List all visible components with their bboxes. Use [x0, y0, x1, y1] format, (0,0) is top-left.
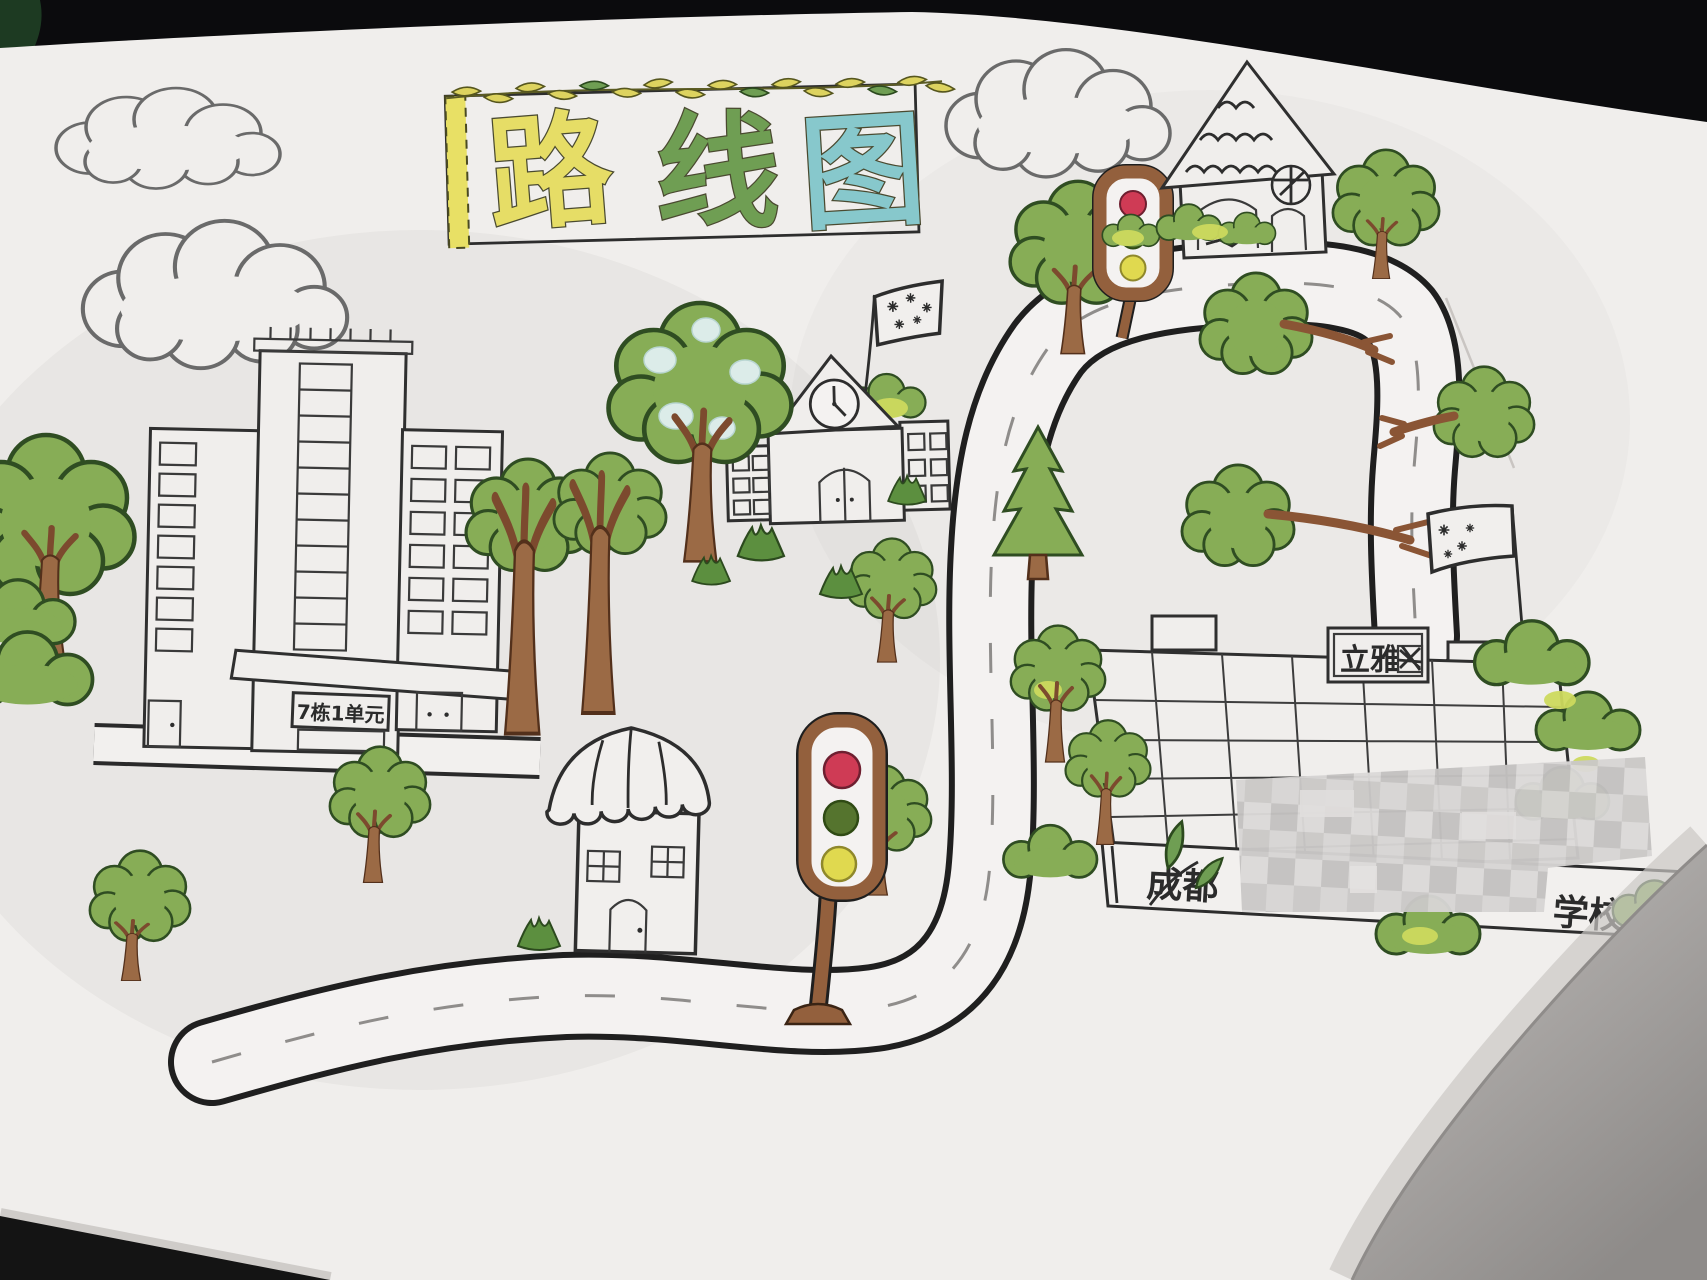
yellow-light: [1121, 256, 1146, 281]
rooftop-structure: [1152, 616, 1216, 650]
rooftop-sign: 立雅: [1328, 628, 1428, 682]
title-char-tu: 图: [797, 98, 930, 249]
green-light: [824, 801, 858, 835]
cottage-window-round: [1272, 166, 1310, 204]
red-light: [824, 752, 860, 788]
rooftop-sign-label: 立雅: [1340, 643, 1400, 678]
yellow-light: [822, 847, 856, 881]
title-char-xian: 线: [655, 101, 780, 246]
drawing-canvas: 路 线 图 7栋1单元: [0, 0, 1707, 1280]
title-char-lu: 路: [483, 97, 619, 250]
school-clock: [810, 379, 859, 428]
photo-of-hand-drawn-route-map: 路 线 图 7栋1单元: [0, 0, 1707, 1280]
red-light: [1120, 191, 1146, 217]
title-banner: 路 线 图: [445, 67, 959, 259]
shop-body: [575, 811, 699, 954]
title-ribbon: [445, 96, 469, 248]
apartment-sign-label: 7栋1单元: [296, 700, 385, 727]
